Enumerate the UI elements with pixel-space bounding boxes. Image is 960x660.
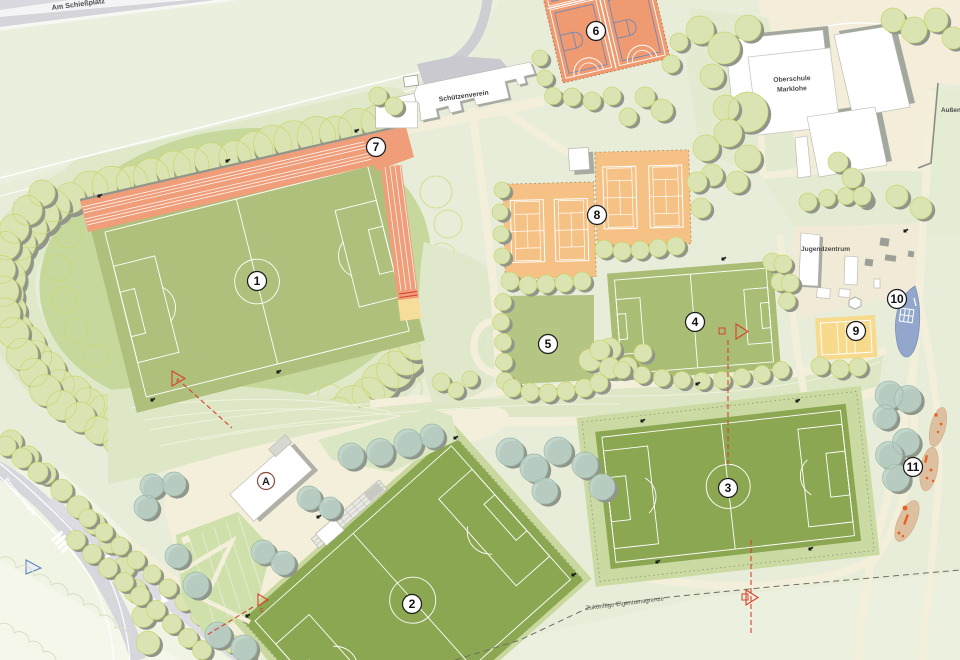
svg-text:3: 3 — [725, 481, 732, 495]
svg-text:9: 9 — [853, 324, 860, 338]
svg-text:5: 5 — [545, 337, 552, 351]
svg-text:1: 1 — [254, 274, 261, 288]
svg-text:A: A — [262, 476, 270, 488]
svg-text:4: 4 — [692, 315, 699, 329]
svg-text:Außengelände: Außengelände — [941, 107, 960, 114]
svg-text:C: C — [260, 608, 264, 614]
svg-text:10: 10 — [890, 292, 904, 306]
svg-text:7: 7 — [373, 140, 380, 154]
svg-text:11: 11 — [907, 460, 920, 474]
svg-text:Jugendzentrum: Jugendzentrum — [801, 246, 850, 253]
svg-text:A: A — [176, 378, 180, 384]
svg-text:6: 6 — [593, 24, 600, 38]
svg-text:2: 2 — [409, 597, 416, 611]
svg-text:8: 8 — [594, 208, 601, 222]
